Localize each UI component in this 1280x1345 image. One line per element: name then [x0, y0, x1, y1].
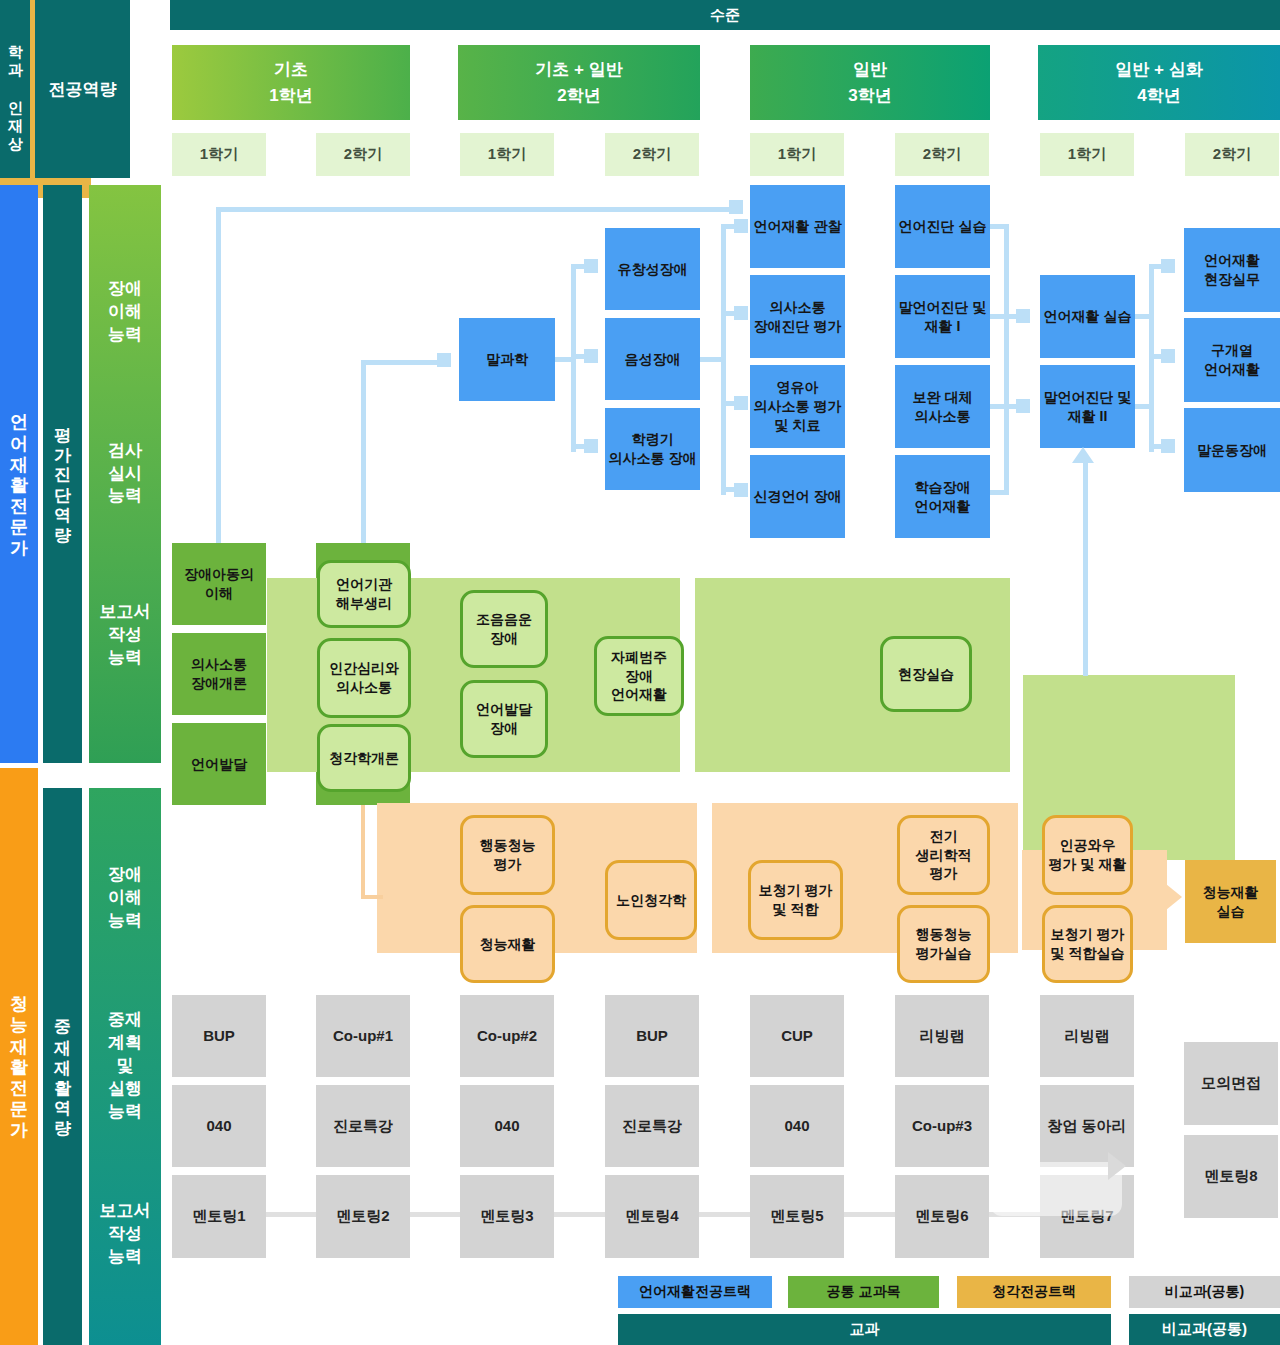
semester-chip: 2학기: [316, 133, 410, 176]
grade-band-year2: 기초 + 일반 2학년: [458, 45, 700, 120]
course-box-common: 장애아동의 이해: [172, 543, 266, 625]
connector-line: [721, 487, 735, 492]
semester-chip: 2학기: [1185, 133, 1279, 176]
grade-band-year3: 일반 3학년: [750, 45, 990, 120]
grade-year: 2학년: [557, 83, 600, 109]
connector-line: [571, 444, 585, 449]
ability-label: 중재 계획 및 실행 능력: [108, 1009, 142, 1124]
semester-chip: 1학기: [172, 133, 266, 176]
grade-level: 일반 + 심화: [1115, 57, 1202, 83]
course-box-common-round: 언어기관 해부생리: [317, 560, 411, 628]
course-box-speech: 말과학: [459, 318, 555, 401]
connector-line: [361, 360, 366, 543]
sidebar-expert-hearing: 청능재활전문가: [0, 768, 38, 1345]
connector-node-icon: [734, 396, 748, 410]
grade-year: 4학년: [1137, 83, 1180, 109]
grade-level: 일반: [853, 57, 887, 83]
ability-label: 보고서 작성 능력: [100, 601, 151, 670]
semester-chip: 1학기: [460, 133, 554, 176]
mentoring-highlight-overlay: [990, 1162, 1122, 1216]
course-box-speech: 유창성장애: [605, 228, 700, 310]
noncurricular-box: Co-up#1: [316, 995, 410, 1077]
competency-column-header: 전공역량: [35, 0, 130, 178]
course-box-speech: 언어진단 실습: [895, 185, 990, 268]
course-box-common-round: 인간심리와 의사소통: [317, 638, 411, 718]
arrow-right-icon: [1166, 884, 1182, 910]
course-box-hearing: 노인청각학: [605, 860, 697, 940]
connector-line: [721, 224, 735, 229]
course-box-common: 의사소통 장애개론: [172, 633, 266, 715]
talent-column-header: 학과 인재상: [0, 0, 30, 178]
course-box-speech: 학령기 의사소통 장애: [605, 408, 700, 490]
course-box-hearing: 인공와우 평가 및 재활: [1042, 815, 1133, 895]
connector-line: [721, 401, 735, 406]
connector-line-orange: [361, 805, 365, 899]
arrow-up-icon: [1072, 447, 1094, 463]
connector-node-icon: [1161, 439, 1175, 453]
grade-band-year4: 일반 + 심화 4학년: [1038, 45, 1280, 120]
noncurricular-box: 멘토링4: [605, 1175, 699, 1258]
connector-node-icon: [584, 349, 598, 363]
course-box-speech: 학습장애 언어재활: [895, 455, 990, 538]
connector-line: [361, 360, 446, 365]
ability-label: 보고서 작성 능력: [100, 1200, 151, 1269]
noncurricular-box: BUP: [605, 995, 699, 1077]
grade-level: 기초 + 일반: [535, 57, 622, 83]
course-box-common: 언어발달: [172, 723, 266, 805]
course-box-speech: 신경언어 장애: [750, 455, 845, 538]
semester-chip: 1학기: [750, 133, 844, 176]
connector-node-icon: [734, 219, 748, 233]
semester-chip: 2학기: [895, 133, 989, 176]
noncurricular-box: 멘토링8: [1184, 1135, 1278, 1218]
course-box-hearing: 보청기 평가 및 적합: [748, 860, 843, 940]
sidebar-competency-intervention: 중재재활역량: [43, 788, 82, 1345]
connector-node-icon: [1161, 349, 1175, 363]
arrow-right-gray-icon: [1108, 1152, 1126, 1180]
course-box-hearing: 청능재활: [460, 905, 555, 983]
connector-node-icon: [1016, 309, 1030, 323]
course-box-hearing: 행동청능 평가: [460, 815, 555, 895]
noncurricular-box: 040: [460, 1085, 554, 1167]
legend-curricular-bar: 교과: [618, 1314, 1111, 1345]
connector-line: [216, 207, 736, 212]
sidebar-competency-evaluation: 평가진단역량: [43, 185, 82, 763]
connector-line: [721, 311, 735, 316]
noncurricular-box: CUP: [750, 995, 844, 1077]
course-box-speech: 보완 대체 의사소통: [895, 365, 990, 448]
connector-node-icon: [584, 439, 598, 453]
sidebar-expert-speech: 언어재활전문가: [0, 185, 38, 763]
connector-line: [571, 264, 585, 269]
noncurricular-box: BUP: [172, 995, 266, 1077]
level-bar: 수준: [170, 0, 1280, 30]
connector-node-icon: [1161, 259, 1175, 273]
connector-line: [1004, 224, 1009, 495]
grade-year: 3학년: [848, 83, 891, 109]
sidebar-abilities-hearing: 장애 이해 능력 중재 계획 및 실행 능력 보고서 작성 능력: [89, 788, 161, 1345]
connector-line: [1083, 462, 1088, 676]
noncurricular-box: 리빙랩: [1040, 995, 1134, 1077]
noncurricular-box: 멘토링1: [172, 1175, 266, 1258]
connector-node-icon: [734, 483, 748, 497]
connector-node-icon: [729, 200, 743, 214]
noncurricular-box: 040: [750, 1085, 844, 1167]
noncurricular-box: 멘토링5: [750, 1175, 844, 1258]
course-box-hearing: 행동청능 평가실습: [897, 905, 990, 983]
course-box-speech: 의사소통 장애진단 평가: [750, 275, 845, 358]
connector-node-icon: [734, 306, 748, 320]
semester-chip: 1학기: [1040, 133, 1134, 176]
course-box-common-round: 자폐범주 장애 언어재활: [594, 636, 684, 716]
grade-level: 기초: [274, 57, 308, 83]
noncurricular-box: 멘토링6: [895, 1175, 989, 1258]
legend-noncurricular: 비교과(공통): [1129, 1276, 1280, 1308]
legend-hearing-track: 청각전공트랙: [957, 1276, 1111, 1308]
grade-year: 1학년: [269, 83, 312, 109]
connector-line: [571, 354, 585, 359]
noncurricular-box: 진로특강: [605, 1085, 699, 1167]
course-box-speech: 언어재활 관찰: [750, 185, 845, 268]
connector-node-icon: [437, 353, 451, 367]
course-box-common-round: 현장실습: [880, 636, 972, 712]
course-box-speech: 음성장애: [605, 318, 700, 400]
course-box-hearing: 전기 생리학적 평가: [897, 815, 990, 895]
connector-node-icon: [584, 259, 598, 273]
course-box-common-round: 조음음운 장애: [460, 590, 548, 668]
semester-chip: 2학기: [605, 133, 699, 176]
connector-line-orange: [361, 895, 383, 899]
course-box-common-round: 언어발달 장애: [460, 680, 548, 758]
ability-label: 검사 실시 능력: [108, 440, 142, 509]
legend-speech-track: 언어재활전공트랙: [618, 1276, 772, 1308]
noncurricular-box: Co-up#2: [460, 995, 554, 1077]
curriculum-roadmap: 학과 인재상 전공역량 수준 기초 1학년 기초 + 일반 2학년 일반 3학년…: [0, 0, 1280, 1345]
course-box-speech: 영유아 의사소통 평가 및 치료: [750, 365, 845, 448]
ability-label: 장애 이해 능력: [108, 278, 142, 347]
connector-line: [216, 207, 221, 543]
noncurricular-box: 040: [172, 1085, 266, 1167]
course-box-speech: 구개열 언어재활: [1184, 318, 1280, 402]
course-box-speech: 말언어진단 및 재활 II: [1040, 365, 1135, 448]
course-box-speech: 말운동장애: [1184, 408, 1280, 492]
course-box-common-round: 청각학개론: [317, 724, 411, 792]
noncurricular-box: 리빙랩: [895, 995, 989, 1077]
grade-band-year1: 기초 1학년: [172, 45, 410, 120]
noncurricular-box: 멘토링2: [316, 1175, 410, 1258]
noncurricular-box: Co-up#3: [895, 1085, 989, 1167]
course-box-hearing-practicum: 청능재활 실습: [1185, 860, 1276, 943]
ability-label: 장애 이해 능력: [108, 864, 142, 933]
course-box-speech: 말언어진단 및 재활 I: [895, 275, 990, 358]
legend-common-courses: 공통 교과목: [788, 1276, 939, 1308]
noncurricular-box: 멘토링3: [460, 1175, 554, 1258]
course-box-hearing: 보청기 평가 및 적합실습: [1042, 905, 1133, 983]
noncurricular-box: 모의면접: [1184, 1042, 1278, 1125]
legend-noncurricular-bar: 비교과(공통): [1129, 1314, 1280, 1345]
connector-node-icon: [1016, 399, 1030, 413]
connector-line: [721, 224, 726, 495]
sidebar-abilities-speech: 장애 이해 능력 검사 실시 능력 보고서 작성 능력: [89, 185, 161, 763]
course-box-speech: 언어재활 현장실무: [1184, 228, 1280, 312]
course-box-speech: 언어재활 실습: [1040, 275, 1135, 358]
noncurricular-box: 진로특강: [316, 1085, 410, 1167]
